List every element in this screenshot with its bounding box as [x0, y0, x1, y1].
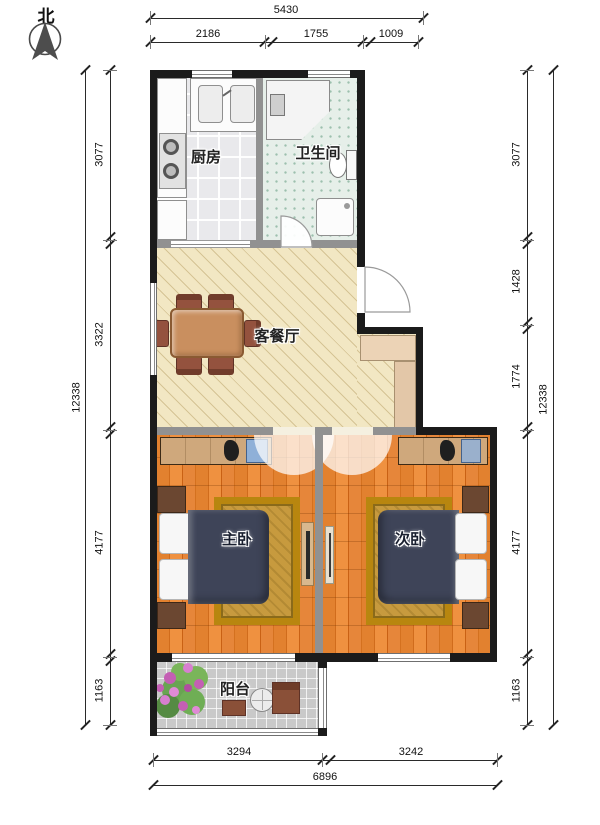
wall-second-bedroom-top: [416, 427, 497, 435]
clothes-icon: [224, 440, 239, 461]
kitchen-sliding-door: [171, 240, 250, 248]
dresser-mirror: [325, 526, 334, 584]
dim-top-seg1: 1755: [286, 28, 346, 41]
nightstand: [462, 486, 489, 513]
wall-entry-top: [357, 327, 423, 334]
dim-line: [553, 70, 554, 725]
dim-bottom-overall: 6896: [295, 771, 355, 784]
kitchen-cabinet: [157, 200, 187, 240]
dim-bottom-seg1: 3242: [381, 746, 441, 759]
sink-basin: [230, 85, 255, 123]
balcony-label: 阳台: [200, 680, 270, 700]
shirt-icon: [461, 439, 481, 463]
dim-right-seg3: 4177: [511, 513, 524, 573]
bathroom-window: [308, 70, 350, 78]
entrance-door-arc: [365, 267, 410, 312]
wall-kitchen-bath-divider: [256, 78, 263, 240]
dim-right-overall: 12338: [538, 370, 551, 430]
second-door-opening: [332, 427, 373, 435]
second-bed: [378, 510, 490, 604]
entry-cabinet: [394, 361, 416, 428]
balcony-side-glass: [318, 668, 327, 728]
dining-table: [170, 308, 244, 358]
dim-left-seg1: 3322: [94, 305, 107, 365]
entry-cabinet: [360, 335, 416, 361]
dim-right-seg0: 3077: [511, 125, 524, 185]
clothes-icon: [440, 440, 455, 461]
dim-right-seg1: 1428: [511, 252, 524, 312]
dim-right-seg4: 1163: [511, 661, 524, 721]
dim-top-seg2: 1009: [361, 28, 421, 41]
dim-line: [85, 70, 86, 725]
kitchen-label: 厨房: [171, 148, 241, 168]
dresser-mirror: [301, 522, 314, 586]
wall-west: [150, 70, 157, 736]
mirror-icon: [306, 531, 310, 579]
wall-east-lower: [490, 427, 497, 662]
washer-knob-icon: [344, 203, 350, 209]
pillow: [455, 559, 487, 600]
dim-line: [110, 70, 111, 725]
master-bedroom-label: 主卧: [202, 530, 272, 550]
dim-line: [150, 18, 423, 19]
compass-icon: [18, 20, 74, 80]
dim-line: [527, 70, 528, 725]
dining-chair: [176, 356, 202, 375]
dining-chair: [208, 356, 234, 375]
wall-bedroom-divider: [315, 435, 323, 653]
floorplan-canvas: 北: [0, 0, 600, 825]
shower-head-icon: [270, 94, 285, 116]
dim-bottom-seg0: 3294: [209, 746, 269, 759]
master-door-opening: [273, 427, 315, 435]
nightstand: [157, 486, 186, 513]
balcony-post: [150, 728, 157, 736]
second-bedroom-label: 次卧: [375, 530, 445, 550]
living-window: [150, 283, 157, 375]
balcony-front-glass: [157, 728, 318, 736]
dim-left-seg2: 4177: [94, 513, 107, 573]
compass-north-label: 北: [18, 2, 74, 20]
bathroom-label: 卫生间: [283, 144, 353, 164]
bed-blanket: [188, 510, 269, 604]
dim-line: [153, 760, 497, 761]
nightstand: [157, 602, 186, 629]
second-bedroom-window: [378, 653, 450, 662]
chair-back: [273, 683, 299, 690]
bed-blanket: [378, 510, 459, 604]
dim-left-seg0: 3077: [94, 125, 107, 185]
balcony-post: [318, 728, 327, 736]
living-dining-label: 客餐厅: [242, 327, 312, 347]
table-line: [252, 700, 272, 701]
dim-top-overall: 5430: [256, 4, 316, 17]
bathroom-door-opening: [281, 240, 312, 248]
sink-basin: [198, 85, 223, 123]
dim-left-seg3: 1163: [94, 661, 107, 721]
entrance-door-opening: [357, 267, 365, 313]
nightstand: [462, 602, 489, 629]
kitchen-window: [192, 70, 232, 78]
balcony-chair: [272, 682, 300, 714]
dim-line: [150, 42, 418, 43]
master-bed: [157, 510, 269, 604]
master-balcony-slider: [172, 653, 295, 662]
dim-line: [153, 785, 497, 786]
pillow: [455, 513, 487, 554]
dim-top-seg0: 2186: [178, 28, 238, 41]
balcony-seat: [222, 700, 246, 716]
mirror-icon: [329, 533, 331, 577]
dim-left-overall: 12338: [71, 368, 84, 428]
wall-entry-right: [416, 334, 423, 435]
dim-right-seg2: 1774: [511, 347, 524, 407]
